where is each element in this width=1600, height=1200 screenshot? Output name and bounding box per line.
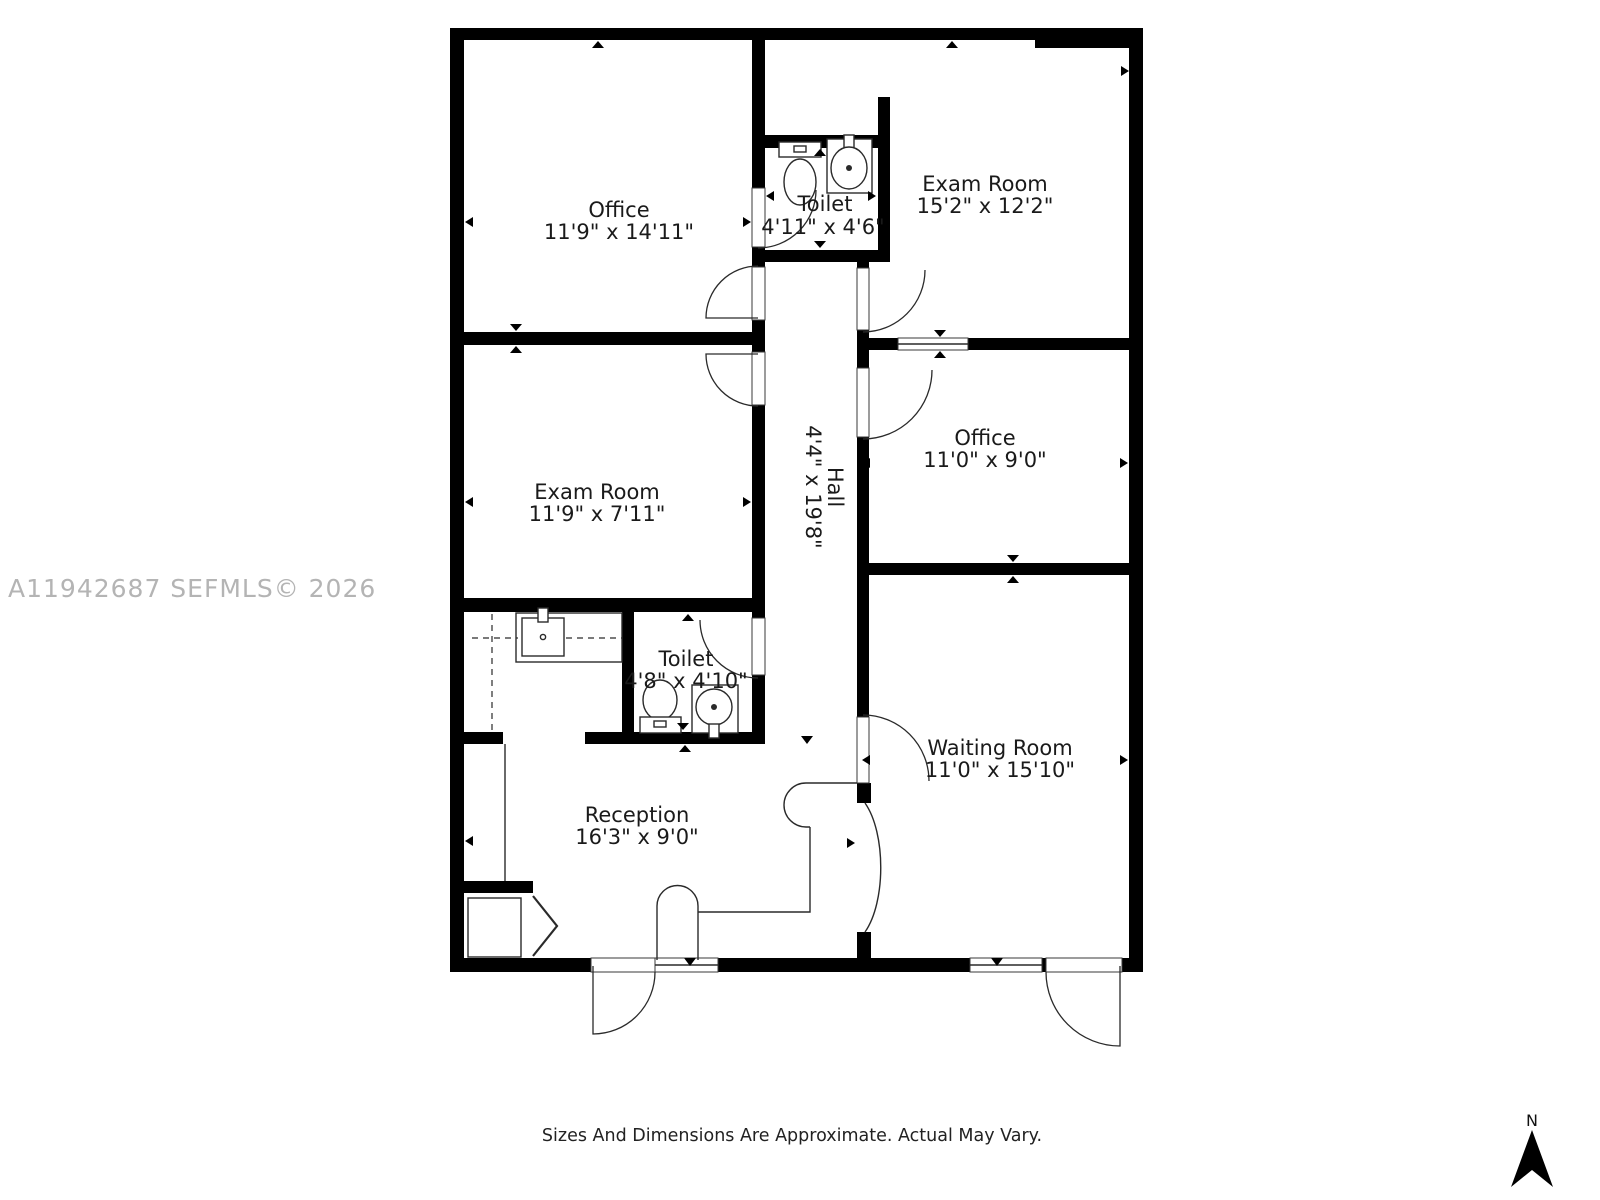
room-reception: Reception 16'3" x 9'0" xyxy=(575,803,698,849)
door-jamb xyxy=(752,618,765,675)
room-dims: 15'2" x 12'2" xyxy=(917,194,1054,218)
room-name: Exam Room xyxy=(534,480,660,504)
faucet-icon xyxy=(538,608,548,622)
room-name: Reception xyxy=(585,803,690,827)
sink-icon xyxy=(827,135,872,193)
room-name: Toilet xyxy=(658,647,714,671)
room-waiting: Waiting Room 11'0" x 15'10" xyxy=(925,736,1075,782)
counter-with-sink xyxy=(472,608,622,730)
closet-box xyxy=(468,898,521,957)
entry-alcove xyxy=(468,896,557,957)
room-dims: 11'0" x 9'0" xyxy=(923,448,1046,472)
room-name: Office xyxy=(588,198,649,222)
room-office-right: Office 11'0" x 9'0" xyxy=(923,426,1046,472)
door-arc xyxy=(863,715,929,781)
curved-partition xyxy=(865,803,881,932)
north-arrow-icon: N xyxy=(1511,1111,1553,1187)
entry-door-arc xyxy=(593,966,655,1034)
room-dims: 11'9" x 7'11" xyxy=(529,502,666,526)
room-exam-left: Exam Room 11'9" x 7'11" xyxy=(529,480,666,526)
door-jamb xyxy=(857,368,869,437)
door-arc xyxy=(706,354,758,406)
door-arc xyxy=(863,270,925,332)
room-name: Hall xyxy=(823,467,847,507)
mls-watermark: A11942687 SEFMLS© 2026 xyxy=(8,574,376,603)
room-toilet-top: Toilet 4'11" x 4'6" xyxy=(761,192,884,239)
door-arc xyxy=(863,370,932,439)
window xyxy=(970,958,1042,972)
room-dims: 16'3" x 9'0" xyxy=(575,825,698,849)
openings xyxy=(591,188,1122,972)
entry-door-opening xyxy=(1046,958,1122,972)
room-exam-top-right: Exam Room 15'2" x 12'2" xyxy=(917,172,1054,218)
room-name: Exam Room xyxy=(922,172,1048,196)
door-jamb xyxy=(857,717,869,783)
north-label: N xyxy=(1526,1111,1538,1130)
room-hall: Hall 4'4" x 19'8" xyxy=(801,425,847,548)
room-office-top-left: Office 11'9" x 14'11" xyxy=(544,198,694,244)
room-name: Office xyxy=(954,426,1015,450)
room-toilet-lower: Toilet 4'8" x 4'10" xyxy=(624,647,747,693)
door-jamb xyxy=(752,352,765,405)
room-dims: 4'4" x 19'8" xyxy=(801,425,825,548)
entry-door-opening xyxy=(591,958,655,972)
folding-door-icon xyxy=(533,896,557,956)
door-jamb xyxy=(857,268,869,330)
door-jamb xyxy=(752,267,765,320)
room-dims: 11'9" x 14'11" xyxy=(544,220,694,244)
room-name: Waiting Room xyxy=(927,736,1072,760)
floor-plan: Office 11'9" x 14'11" Toilet 4'11" x 4'6… xyxy=(0,0,1600,1200)
room-dims: 11'0" x 15'10" xyxy=(925,758,1075,782)
floor-plan-page: Office 11'9" x 14'11" Toilet 4'11" x 4'6… xyxy=(0,0,1600,1200)
room-name: Toilet xyxy=(797,192,853,216)
door-arc xyxy=(706,266,758,318)
entry-door-arc xyxy=(1046,966,1120,1046)
room-dims: 4'11" x 4'6" xyxy=(761,215,884,239)
room-dims: 4'8" x 4'10" xyxy=(624,669,747,693)
disclaimer-text: Sizes And Dimensions Are Approximate. Ac… xyxy=(542,1126,1042,1146)
